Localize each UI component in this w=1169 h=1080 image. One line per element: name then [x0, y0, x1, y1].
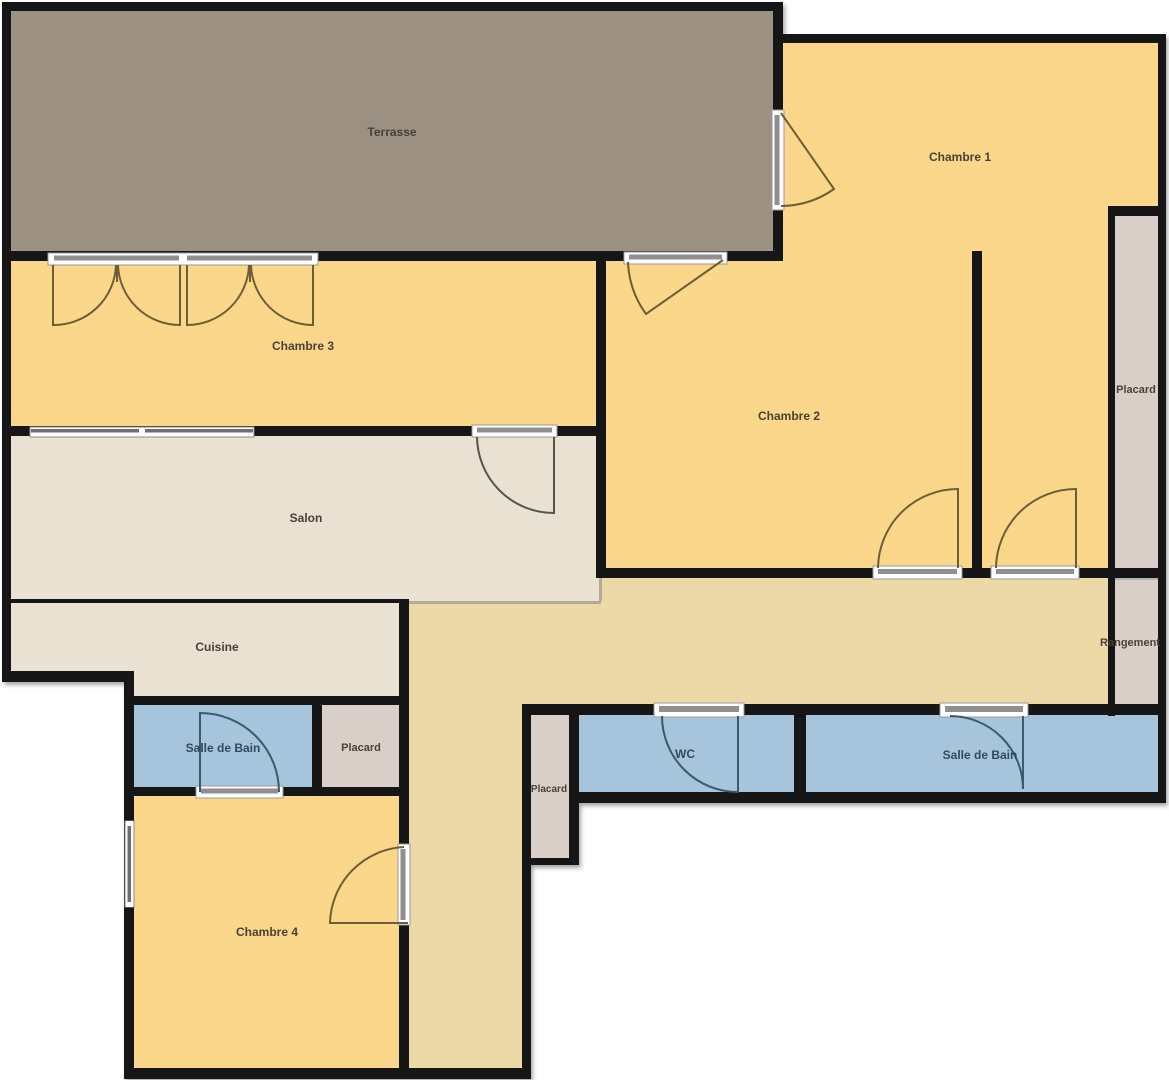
svg-text:Placard: Placard — [531, 784, 567, 795]
svg-text:Placard: Placard — [1116, 384, 1156, 396]
svg-text:Salle de Bain: Salle de Bain — [943, 748, 1018, 762]
svg-text:Rangement: Rangement — [1100, 637, 1160, 649]
svg-text:Chambre 1: Chambre 1 — [929, 150, 991, 164]
svg-text:Cuisine: Cuisine — [195, 640, 239, 654]
svg-text:WC: WC — [675, 747, 695, 761]
svg-text:Chambre 4: Chambre 4 — [236, 925, 298, 939]
svg-text:Terrasse: Terrasse — [367, 125, 416, 139]
svg-text:Placard: Placard — [341, 742, 381, 754]
svg-text:Chambre 3: Chambre 3 — [272, 339, 334, 353]
svg-text:Salle de Bain: Salle de Bain — [186, 741, 261, 755]
svg-text:Chambre 2: Chambre 2 — [758, 409, 820, 423]
svg-text:Salon: Salon — [290, 511, 323, 525]
